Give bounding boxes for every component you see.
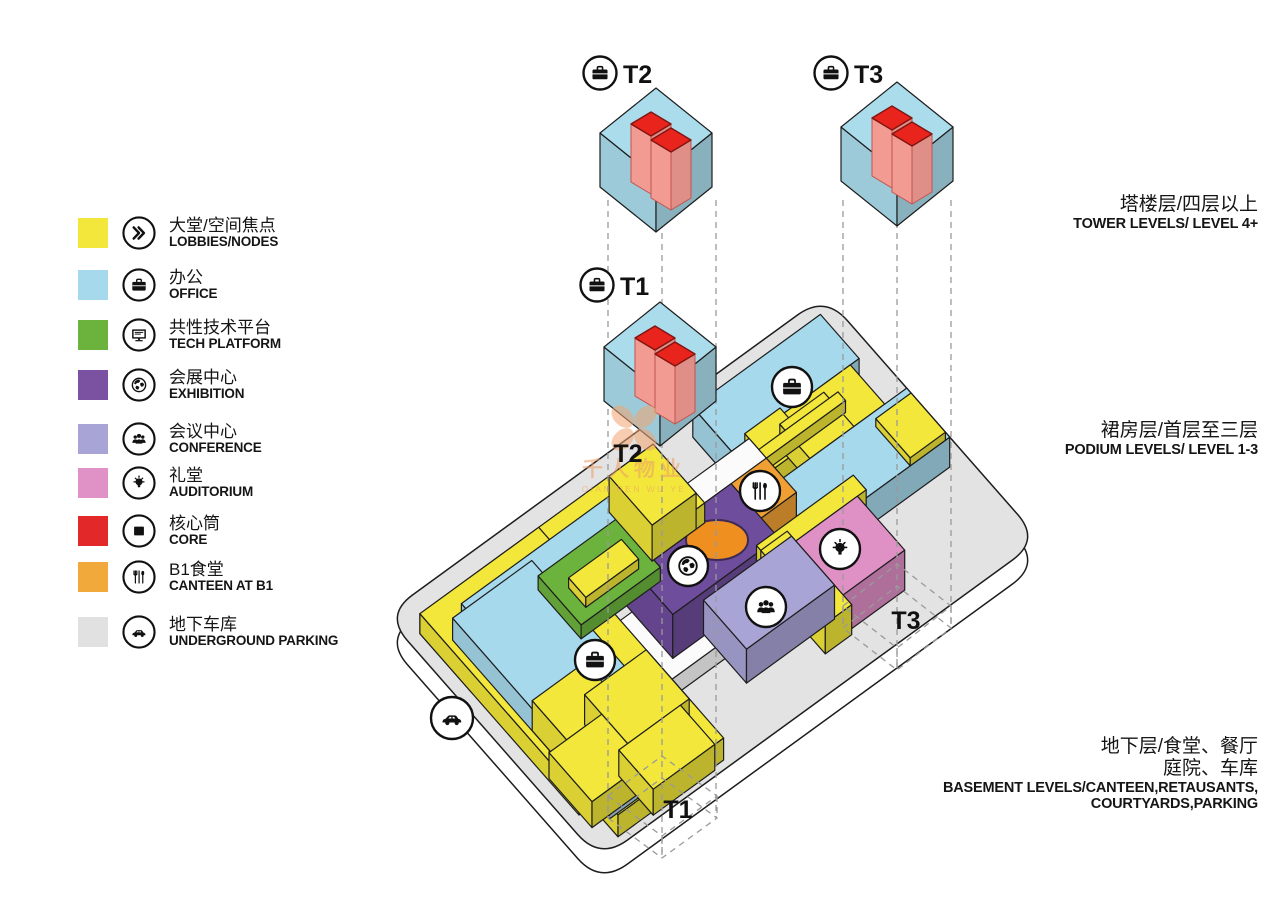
auditorium-badge xyxy=(820,529,860,569)
globe-icon xyxy=(121,367,157,403)
t1-tower-badge xyxy=(581,269,614,302)
t2-tower-label: T2 xyxy=(623,61,652,89)
legend-zh: 共性技术平台 xyxy=(169,319,281,337)
legend-en: TECH PLATFORM xyxy=(169,337,281,351)
legend-swatch xyxy=(78,562,108,592)
t2-podium-label: T2 xyxy=(613,440,642,468)
car-icon xyxy=(121,614,157,650)
briefcase-icon xyxy=(121,267,157,303)
utensils-icon xyxy=(753,483,767,499)
t2-tower-badge xyxy=(584,57,617,90)
legend: 大堂/空间焦点LOBBIES/NODES 办公OFFICE 共性技术平台TECH… xyxy=(0,0,400,700)
legend-en: CORE xyxy=(169,533,220,547)
legend-swatch xyxy=(78,516,108,546)
level-en: COURTYARDS,PARKING xyxy=(943,796,1258,813)
level-label-basement: 地下层/食堂、餐厅 庭院、车库 BASEMENT LEVELS/CANTEEN,… xyxy=(943,736,1258,813)
people-icon xyxy=(121,421,157,457)
legend-item-auditorium: 礼堂AUDITORIUM xyxy=(78,466,253,500)
legend-item-conference: 会议中心CONFERENCE xyxy=(78,422,262,456)
axon-geometry xyxy=(397,82,1027,873)
legend-en: CONFERENCE xyxy=(169,441,262,455)
level-label-podium: 裙房层/首层至三层 PODIUM LEVELS/ LEVEL 1-3 xyxy=(1065,420,1258,459)
program-axon-diagram: 千人物业 QIAN REN WU YE T2 T3 T1 T2 T3 xyxy=(0,0,1268,897)
legend-zh: 地下车库 xyxy=(169,616,338,634)
legend-swatch xyxy=(78,270,108,300)
watermark-latin: QIAN REN WU YE xyxy=(582,484,687,494)
legend-zh: 会议中心 xyxy=(169,423,262,441)
monitor-icon xyxy=(121,317,157,353)
level-label-tower: 塔楼层/四层以上 TOWER LEVELS/ LEVEL 4+ xyxy=(1073,194,1258,233)
lightbulb-icon xyxy=(121,465,157,501)
core-square-icon xyxy=(121,513,157,549)
chevrons-icon xyxy=(121,215,157,251)
level-zh: 庭院、车库 xyxy=(943,758,1258,780)
t3-tower-badge xyxy=(815,57,848,90)
legend-en: EXHIBITION xyxy=(169,387,244,401)
conference-badge xyxy=(746,587,786,627)
level-zh: 塔楼层/四层以上 xyxy=(1073,194,1258,216)
legend-item-parking: 地下车库UNDERGROUND PARKING xyxy=(78,615,338,649)
level-en: BASEMENT LEVELS/CANTEEN,RETAUSANTS, xyxy=(943,780,1258,797)
legend-en: CANTEEN AT B1 xyxy=(169,579,273,593)
legend-item-office: 办公OFFICE xyxy=(78,268,217,302)
legend-swatch xyxy=(78,424,108,454)
exhibition-badge xyxy=(668,546,708,586)
legend-swatch xyxy=(78,370,108,400)
legend-item-canteen: B1食堂CANTEEN AT B1 xyxy=(78,560,273,594)
legend-item-exhibition: 会展中心EXHIBITION xyxy=(78,368,244,402)
t1-footprint-label: T1 xyxy=(663,796,692,824)
legend-zh: 办公 xyxy=(169,269,217,287)
legend-swatch xyxy=(78,320,108,350)
t3-tower-label: T3 xyxy=(854,61,883,89)
legend-swatch xyxy=(78,617,108,647)
utensils-icon xyxy=(121,559,157,595)
level-en: PODIUM LEVELS/ LEVEL 1-3 xyxy=(1065,442,1258,459)
t3-footprint-label: T3 xyxy=(891,607,920,635)
t1-tower-label: T1 xyxy=(620,273,649,301)
office-sw-badge xyxy=(575,640,615,680)
legend-zh: 大堂/空间焦点 xyxy=(169,217,278,235)
legend-zh: B1食堂 xyxy=(169,561,273,579)
legend-zh: 核心筒 xyxy=(169,515,220,533)
legend-swatch xyxy=(78,218,108,248)
legend-item-lobbies: 大堂/空间焦点LOBBIES/NODES xyxy=(78,216,278,250)
office-ne-badge xyxy=(772,367,812,407)
level-zh: 地下层/食堂、餐厅 xyxy=(943,736,1258,758)
legend-zh: 礼堂 xyxy=(169,467,253,485)
legend-en: OFFICE xyxy=(169,287,217,301)
legend-en: AUDITORIUM xyxy=(169,485,253,499)
canteen-badge xyxy=(740,471,780,511)
level-zh: 裙房层/首层至三层 xyxy=(1065,420,1258,442)
parking-badge xyxy=(431,697,473,739)
legend-zh: 会展中心 xyxy=(169,369,244,387)
legend-en: UNDERGROUND PARKING xyxy=(169,634,338,648)
legend-swatch xyxy=(78,468,108,498)
level-en: TOWER LEVELS/ LEVEL 4+ xyxy=(1073,216,1258,233)
legend-item-tech-platform: 共性技术平台TECH PLATFORM xyxy=(78,318,281,352)
legend-en: LOBBIES/NODES xyxy=(169,235,278,249)
legend-item-core: 核心筒CORE xyxy=(78,514,220,548)
